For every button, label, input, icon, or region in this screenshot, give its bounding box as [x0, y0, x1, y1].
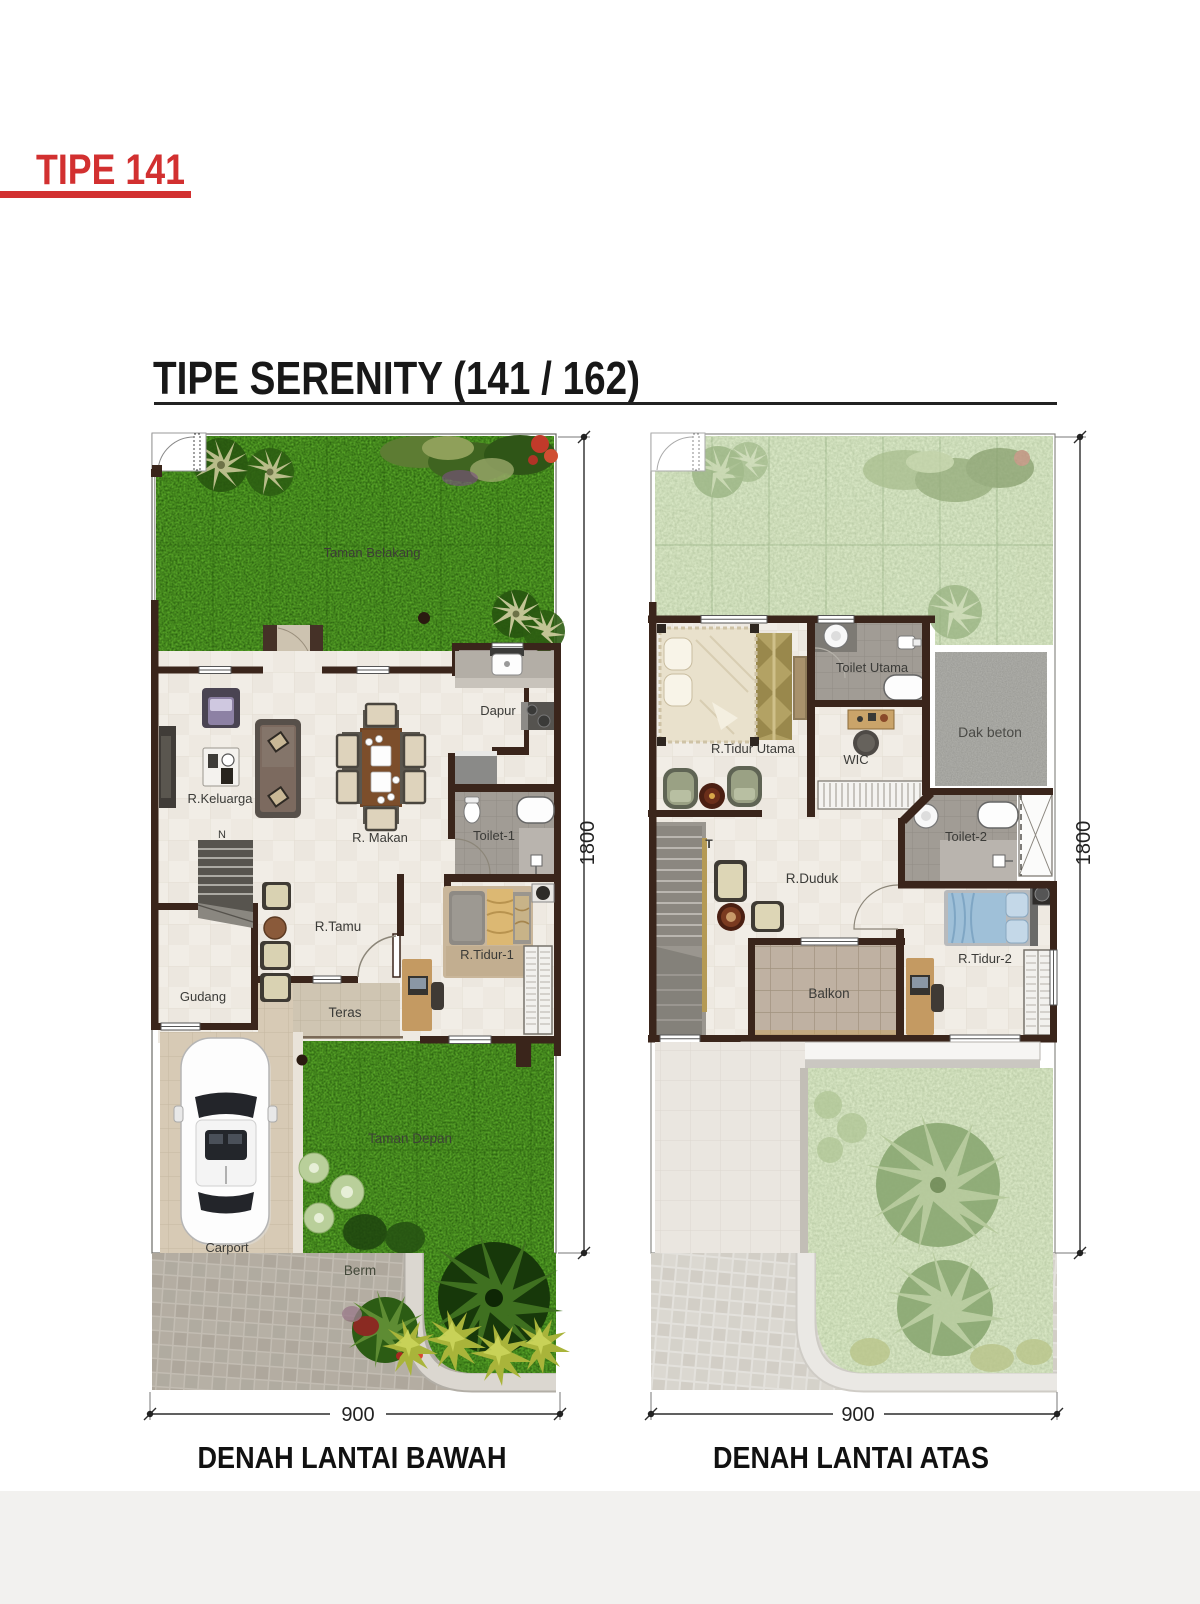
svg-text:R.Tidur-1: R.Tidur-1: [460, 947, 514, 962]
svg-text:Carport: Carport: [205, 1240, 249, 1255]
svg-text:900: 900: [341, 1404, 374, 1426]
svg-text:Balkon: Balkon: [808, 986, 849, 1001]
svg-text:R.Duduk: R.Duduk: [786, 871, 839, 886]
svg-text:1800: 1800: [1073, 821, 1095, 866]
svg-text:R. Makan: R. Makan: [352, 830, 408, 845]
svg-text:T: T: [705, 837, 713, 851]
svg-text:R.Tidur-2: R.Tidur-2: [958, 951, 1012, 966]
svg-text:R.Tidur Utama: R.Tidur Utama: [711, 741, 796, 756]
svg-text:Dapur: Dapur: [480, 703, 516, 718]
svg-text:N: N: [218, 829, 226, 841]
svg-text:Berm: Berm: [344, 1263, 376, 1278]
svg-text:TIPE SERENITY (141 / 162): TIPE SERENITY (141 / 162): [153, 352, 640, 404]
svg-text:Toilet-2: Toilet-2: [945, 829, 987, 844]
svg-text:900: 900: [841, 1404, 874, 1426]
svg-text:R.Keluarga: R.Keluarga: [187, 791, 253, 806]
svg-text:Toilet-1: Toilet-1: [473, 828, 515, 843]
svg-text:TIPE 141: TIPE 141: [36, 146, 185, 194]
svg-text:1800: 1800: [577, 821, 599, 866]
svg-text:DENAH LANTAI ATAS: DENAH LANTAI ATAS: [713, 1440, 989, 1475]
svg-text:R.Tamu: R.Tamu: [315, 919, 362, 934]
svg-text:Toilet Utama: Toilet Utama: [836, 660, 909, 675]
svg-text:Teras: Teras: [328, 1005, 361, 1020]
svg-text:Gudang: Gudang: [180, 989, 226, 1004]
svg-text:Taman Depan: Taman Depan: [368, 1131, 452, 1146]
svg-text:DENAH LANTAI BAWAH: DENAH LANTAI BAWAH: [198, 1440, 507, 1475]
svg-text:Taman Belakang: Taman Belakang: [324, 545, 421, 560]
svg-text:WIC: WIC: [843, 752, 868, 767]
svg-text:Dak beton: Dak beton: [958, 724, 1022, 740]
